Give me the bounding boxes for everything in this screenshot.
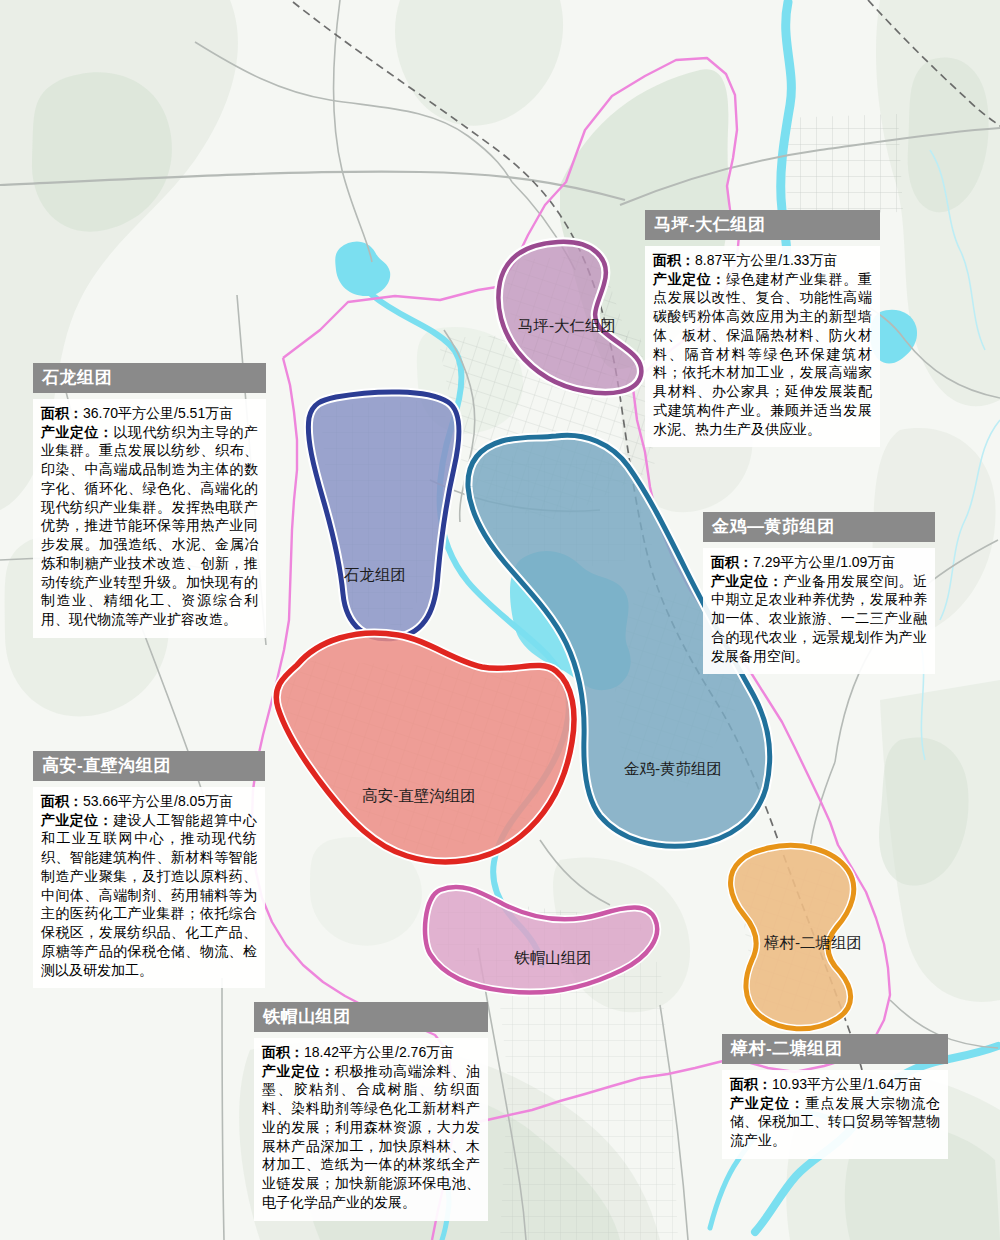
cluster-card-title: 马坪-大仁组团 — [645, 210, 880, 240]
cluster-card-body: 面积：7.29平方公里/1.09万亩 产业定位：产业备用发展空间。近中期立足农业… — [703, 548, 935, 675]
planning-map: 马坪-大仁组团 石龙组团 金鸡-黄茆组团 高安-直壁沟组团 铁帽山组团 樟村-二… — [0, 0, 1000, 1240]
positioning-value: 建设人工智能超算中心和工业互联网中心，推动现代纺织、智能建筑构件、新材料等智能制… — [41, 812, 257, 978]
area-label: 面积： — [653, 252, 695, 268]
cluster-map-label-zhangcun-ertang: 樟村-二塘组团 — [763, 934, 862, 951]
cluster-card-zhangcun-ertang: 樟村-二塘组团 面积：10.93平方公里/1.64万亩 产业定位：重点发展大宗物… — [722, 1034, 948, 1159]
cluster-card-title: 金鸡—黄茆组团 — [703, 512, 935, 542]
cluster-map-label-gaoan-zhibigou: 高安-直壁沟组团 — [362, 787, 476, 804]
area-value: 10.93平方公里/1.64万亩 — [772, 1076, 922, 1092]
cluster-map-label-shilong: 石龙组团 — [343, 566, 406, 583]
cluster-card-tiemaoshan: 铁帽山组团 面积：18.42平方公里/2.76万亩 产业定位：积极推动高端涂料、… — [254, 1002, 488, 1221]
cluster-card-maping-daren: 马坪-大仁组团 面积：8.87平方公里/1.33万亩 产业定位：绿色建材产业集群… — [645, 210, 880, 447]
area-value: 53.66平方公里/8.05万亩 — [83, 793, 233, 809]
cluster-card-body: 面积：10.93平方公里/1.64万亩 产业定位：重点发展大宗物流仓储、保税加工… — [722, 1070, 948, 1159]
positioning-label: 产业定位： — [41, 424, 114, 440]
cluster-card-body: 面积：36.70平方公里/5.51万亩 产业定位：以现代纺织为主导的产业集群。重… — [33, 399, 266, 638]
positioning-label: 产业定位： — [711, 573, 783, 589]
cluster-card-title: 铁帽山组团 — [254, 1002, 488, 1032]
cluster-card-shilong: 石龙组团 面积：36.70平方公里/5.51万亩 产业定位：以现代纺织为主导的产… — [33, 363, 266, 638]
cluster-card-title: 高安-直壁沟组团 — [33, 751, 265, 781]
area-label: 面积： — [711, 554, 753, 570]
positioning-label: 产业定位： — [262, 1063, 335, 1079]
area-value: 36.70平方公里/5.51万亩 — [83, 405, 233, 421]
positioning-label: 产业定位： — [41, 812, 113, 828]
cluster-card-title: 樟村-二塘组团 — [722, 1034, 948, 1064]
cluster-card-body: 面积：53.66平方公里/8.05万亩 产业定位：建设人工智能超算中心和工业互联… — [33, 787, 265, 989]
cluster-map-label-tiemaoshan: 铁帽山组团 — [514, 949, 592, 966]
area-label: 面积： — [41, 793, 83, 809]
cluster-card-title: 石龙组团 — [33, 363, 266, 393]
area-value: 7.29平方公里/1.09万亩 — [753, 554, 895, 570]
cluster-map-label-jinji-huangmao: 金鸡-黄茆组团 — [624, 760, 722, 777]
cluster-card-jinji-huangmao: 金鸡—黄茆组团 面积：7.29平方公里/1.09万亩 产业定位：产业备用发展空间… — [703, 512, 935, 674]
area-label: 面积： — [730, 1076, 772, 1092]
positioning-label: 产业定位： — [730, 1095, 805, 1111]
cluster-card-body: 面积：18.42平方公里/2.76万亩 产业定位：积极推动高端涂料、油墨、胶粘剂… — [254, 1038, 488, 1221]
cluster-card-gaoan-zhibigou: 高安-直壁沟组团 面积：53.66平方公里/8.05万亩 产业定位：建设人工智能… — [33, 751, 265, 988]
area-value: 18.42平方公里/2.76万亩 — [304, 1044, 454, 1060]
positioning-value: 绿色建材产业集群。重点发展以改性、复合、功能性高端碳酸钙粉体高效应用为主的新型墙… — [653, 271, 872, 437]
positioning-value: 以现代纺织为主导的产业集群。重点发展以纺纱、织布、印染、中高端成品制造为主体的数… — [41, 424, 258, 628]
area-label: 面积： — [41, 405, 83, 421]
cluster-card-body: 面积：8.87平方公里/1.33万亩 产业定位：绿色建材产业集群。重点发展以改性… — [645, 246, 880, 448]
area-value: 8.87平方公里/1.33万亩 — [695, 252, 837, 268]
positioning-label: 产业定位： — [653, 271, 726, 287]
positioning-value: 积极推动高端涂料、油墨、胶粘剂、合成树脂、纺织面料、染料助剂等绿色化工新材料产业… — [262, 1063, 480, 1210]
cluster-map-label-maping-daren: 马坪-大仁组团 — [518, 317, 616, 334]
area-label: 面积： — [262, 1044, 304, 1060]
